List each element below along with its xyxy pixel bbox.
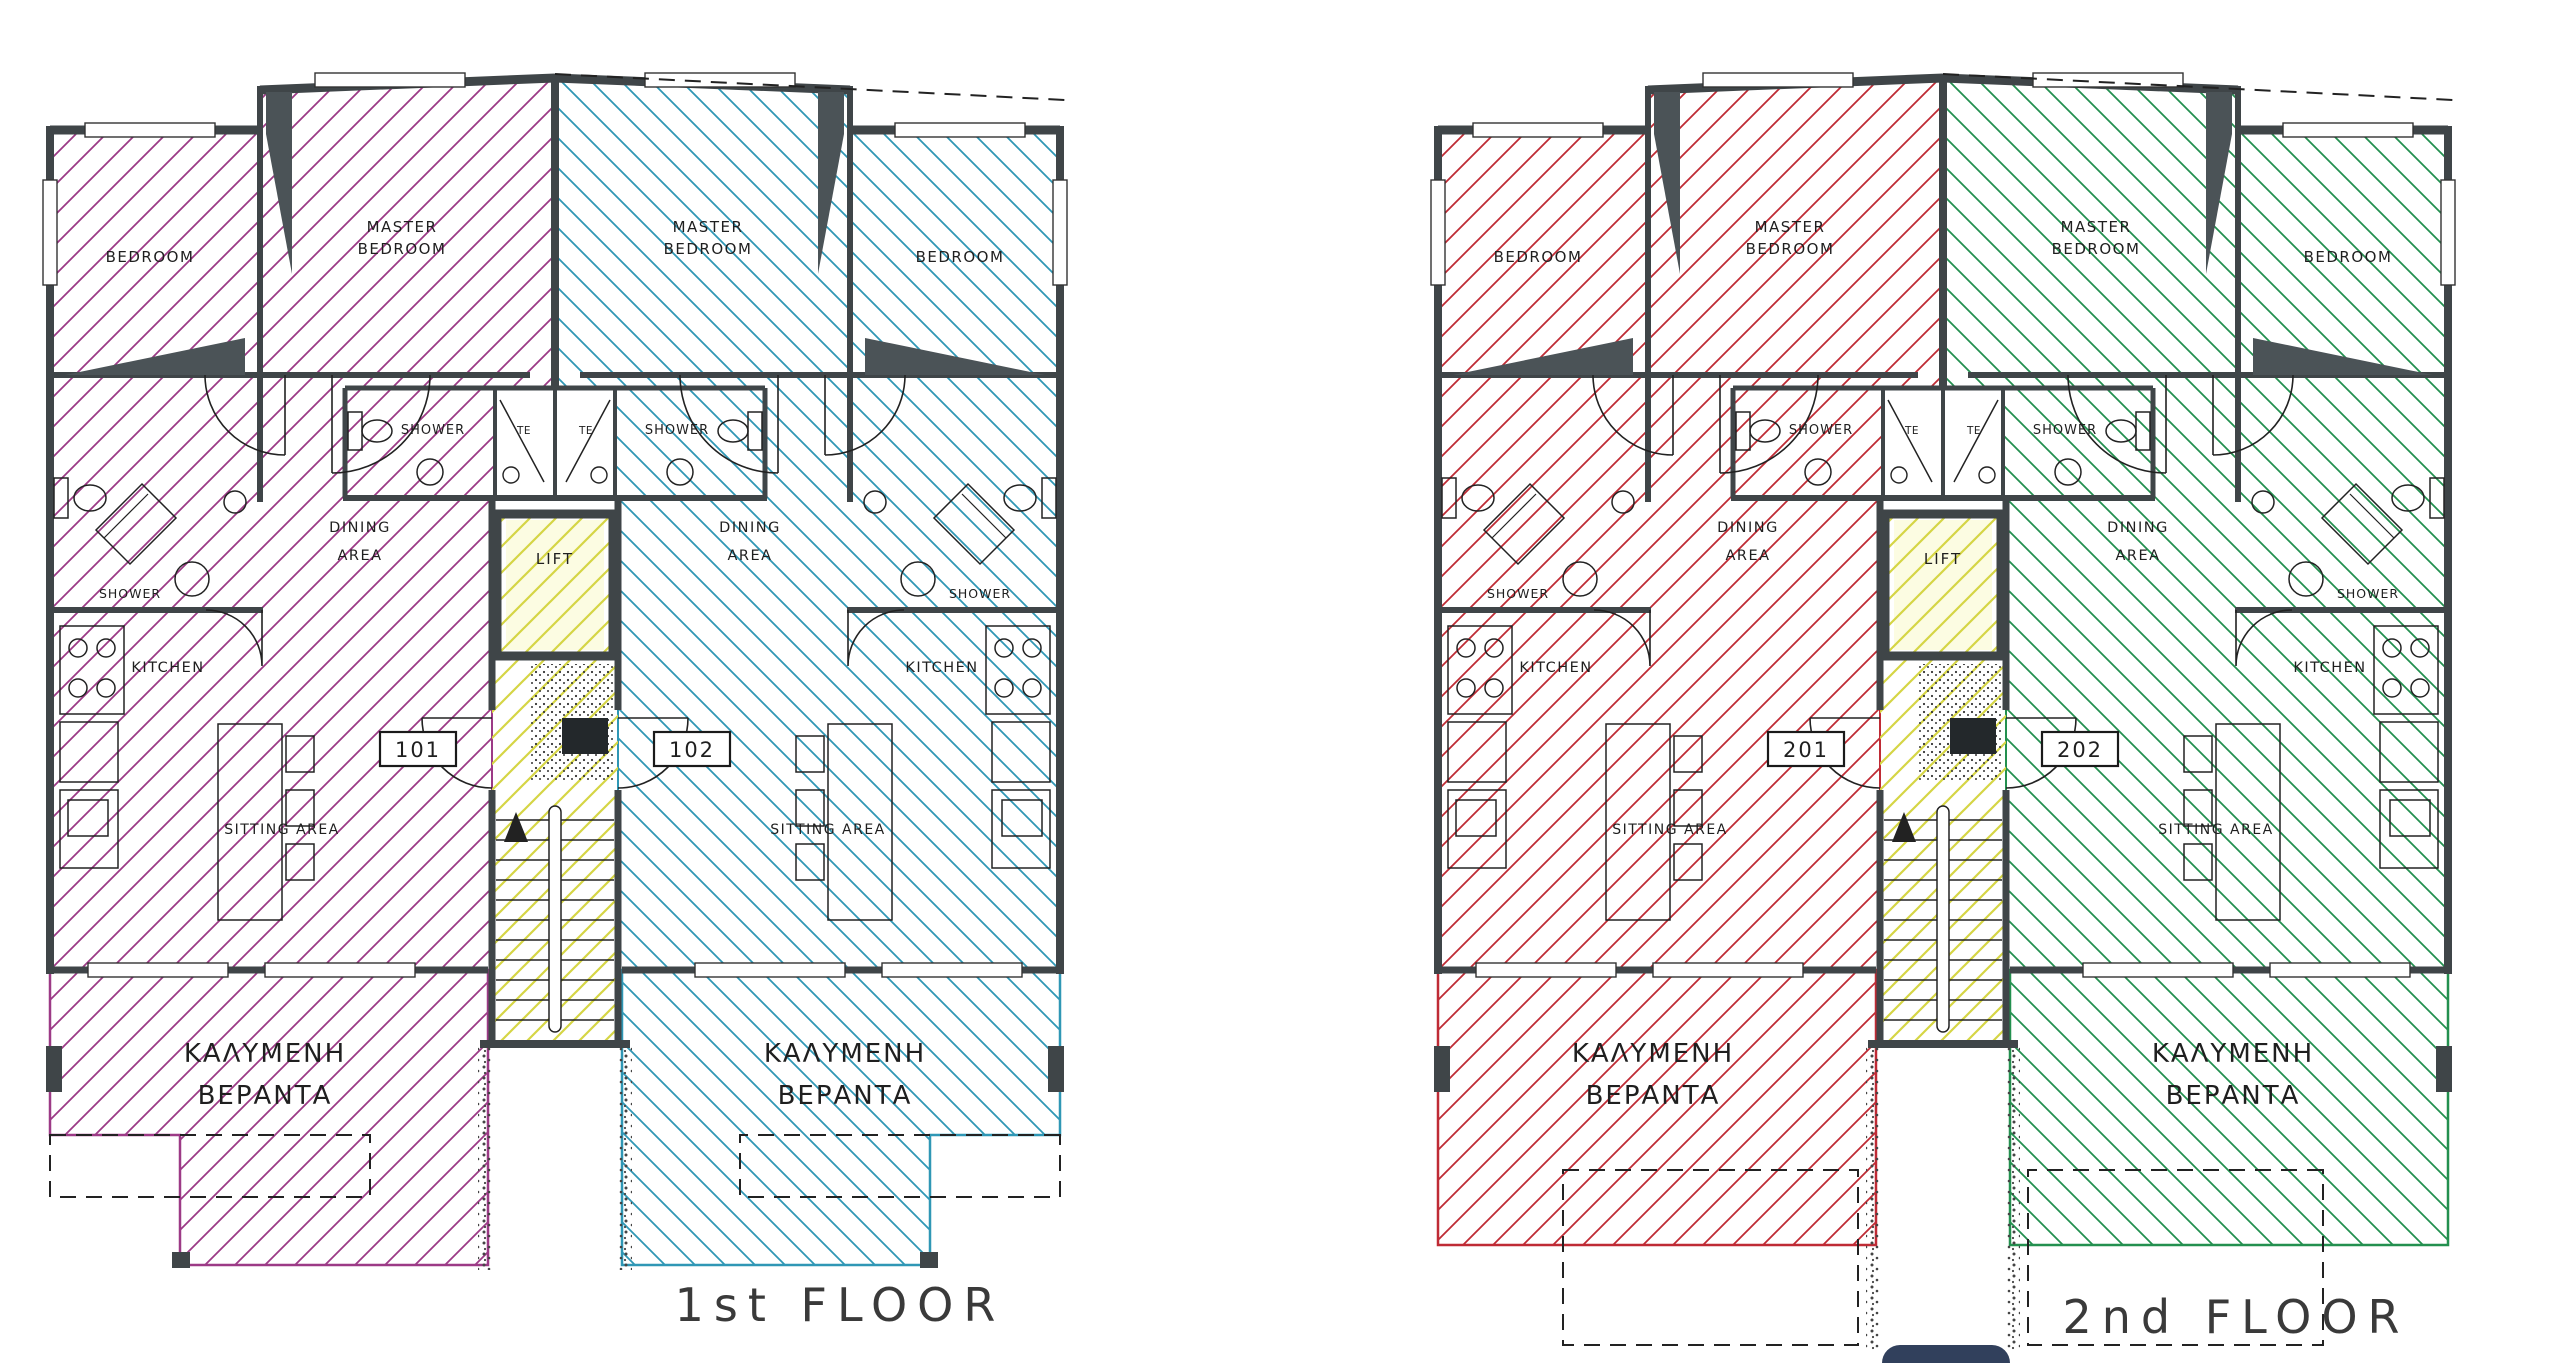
- room-label-master-bedroom: MASTER: [673, 218, 744, 236]
- stair-rail: [549, 806, 561, 1032]
- room-label-sitting-area: SITTING AREA: [770, 822, 886, 838]
- plan-svg: BEDROOMMASTERBEDROOMSHOWERSHOWERDININGAR…: [1418, 30, 2468, 1365]
- column: [1434, 1046, 1450, 1092]
- room-label-dining-area: DINING: [719, 520, 781, 536]
- room-label-dining-area: DINING: [1717, 520, 1779, 536]
- room-label-shower: SHOWER: [1789, 423, 1853, 438]
- room-label-veranda: ΚΑΛΥΜΕΝΗ: [1572, 1039, 1734, 1069]
- window: [2083, 963, 2233, 977]
- room-label-master-bedroom: BEDROOM: [2052, 240, 2141, 258]
- window: [1473, 123, 1603, 137]
- cabinet: [562, 718, 608, 754]
- window: [2283, 123, 2413, 137]
- room-label-sitting-area: SITTING AREA: [1612, 822, 1728, 838]
- water-heater: [591, 467, 607, 483]
- room-label-veranda: ΒΕΡΑΝΤΑ: [198, 1081, 333, 1111]
- room-label-dining-area: DINING: [2107, 520, 2169, 536]
- render-strip: [2007, 1044, 2020, 1350]
- column: [1048, 1046, 1064, 1092]
- unit-number: 202: [2057, 738, 2103, 762]
- plan-svg: BEDROOMMASTERBEDROOMSHOWERSHOWERDININGAR…: [30, 30, 1080, 1365]
- room-label-master-bedroom: MASTER: [2061, 218, 2132, 236]
- room-label-dining-area: AREA: [1725, 548, 1770, 564]
- window: [265, 963, 415, 977]
- room-label-dining-area: AREA: [727, 548, 772, 564]
- room-label-bedroom: BEDROOM: [916, 248, 1005, 266]
- unit-number: 201: [1783, 738, 1829, 762]
- window: [85, 123, 215, 137]
- room-label-veranda: ΒΕΡΑΝΤΑ: [2166, 1081, 2301, 1111]
- room-label-dining-area: DINING: [329, 520, 391, 536]
- logo-partial: [1882, 1345, 2010, 1363]
- column: [46, 1046, 62, 1092]
- room-label-shower: SHOWER: [1487, 586, 1549, 601]
- window: [2441, 180, 2455, 285]
- room-label-veranda: ΚΑΛΥΜΕΝΗ: [2152, 1039, 2314, 1069]
- room-label-kitchen: KITCHEN: [131, 660, 204, 676]
- room-label-kitchen: KITCHEN: [905, 660, 978, 676]
- room-label-kitchen: KITCHEN: [2293, 660, 2366, 676]
- room-label-master-bedroom: MASTER: [367, 218, 438, 236]
- room-label-kitchen: KITCHEN: [1519, 660, 1592, 676]
- window: [882, 963, 1022, 977]
- room-label-sitting-area: SITTING AREA: [2158, 822, 2274, 838]
- window: [1476, 963, 1616, 977]
- floor-title-1st: 1st FLOOR: [630, 1278, 1050, 1332]
- window: [43, 180, 57, 285]
- room-label-veranda: ΚΑΛΥΜΕΝΗ: [184, 1039, 346, 1069]
- room-label-te: TE: [578, 425, 593, 437]
- room-label-master-bedroom: BEDROOM: [358, 240, 447, 258]
- window: [88, 963, 228, 977]
- window: [2270, 963, 2410, 977]
- floor-title-2nd: 2nd FLOOR: [2026, 1290, 2446, 1344]
- window: [1053, 180, 1067, 285]
- render-strip: [619, 1044, 632, 1270]
- unit-number: 101: [395, 738, 441, 762]
- unit-number: 102: [669, 738, 715, 762]
- window: [1703, 73, 1853, 87]
- floor-plan-first-floor: BEDROOMMASTERBEDROOMSHOWERSHOWERDININGAR…: [30, 30, 1080, 1369]
- covered-veranda: [50, 970, 488, 1265]
- room-label-lift: LIFT: [1924, 550, 1962, 568]
- cabinet: [1950, 718, 1996, 754]
- room-label-master-bedroom: BEDROOM: [664, 240, 753, 258]
- room-label-shower: SHOWER: [949, 586, 1011, 601]
- room-label-master-bedroom: BEDROOM: [1746, 240, 1835, 258]
- room-label-dining-area: AREA: [337, 548, 382, 564]
- room-label-bedroom: BEDROOM: [2304, 248, 2393, 266]
- room-label-shower: SHOWER: [401, 423, 465, 438]
- render-strip: [1866, 1044, 1879, 1350]
- room-label-shower: SHOWER: [99, 586, 161, 601]
- room-label-shower: SHOWER: [2337, 586, 2399, 601]
- stair-rail: [1937, 806, 1949, 1032]
- room-label-lift: LIFT: [536, 550, 574, 568]
- window: [695, 963, 845, 977]
- room-label-master-bedroom: MASTER: [1755, 218, 1826, 236]
- room-label-bedroom: BEDROOM: [106, 248, 195, 266]
- window: [1653, 963, 1803, 977]
- room-label-te: TE: [516, 425, 531, 437]
- window: [315, 73, 465, 87]
- room-label-te: TE: [1966, 425, 1981, 437]
- column: [2436, 1046, 2452, 1092]
- room-label-bedroom: BEDROOM: [1494, 248, 1583, 266]
- window: [1431, 180, 1445, 285]
- room-label-sitting-area: SITTING AREA: [224, 822, 340, 838]
- floor-plan-second-floor: BEDROOMMASTERBEDROOMSHOWERSHOWERDININGAR…: [1418, 30, 2468, 1369]
- column: [920, 1252, 938, 1268]
- water-heater: [1979, 467, 1995, 483]
- room-label-veranda: ΚΑΛΥΜΕΝΗ: [764, 1039, 926, 1069]
- room-label-shower: SHOWER: [645, 423, 709, 438]
- water-heater: [503, 467, 519, 483]
- room-label-veranda: ΒΕΡΑΝΤΑ: [1586, 1081, 1721, 1111]
- water-heater: [1891, 467, 1907, 483]
- room-label-te: TE: [1904, 425, 1919, 437]
- room-label-shower: SHOWER: [2033, 423, 2097, 438]
- render-strip: [478, 1044, 491, 1270]
- covered-veranda: [622, 970, 1060, 1265]
- column: [172, 1252, 190, 1268]
- room-label-dining-area: AREA: [2115, 548, 2160, 564]
- room-label-veranda: ΒΕΡΑΝΤΑ: [778, 1081, 913, 1111]
- window: [895, 123, 1025, 137]
